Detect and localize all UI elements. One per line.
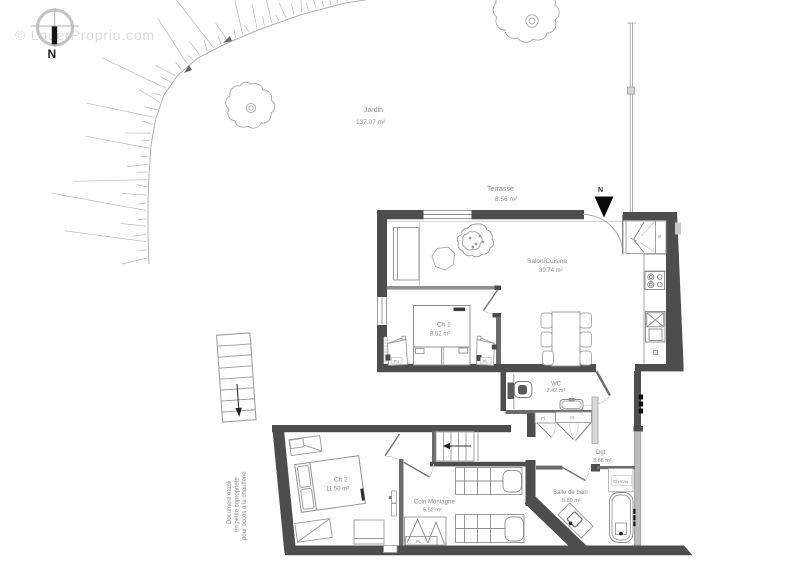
svg-text:Document établi: Document établi [227,481,233,524]
svg-text:Pl.: Pl. [541,416,546,421]
svg-text:N: N [48,47,57,61]
svg-text:PL: PL [416,539,422,544]
svg-text:WC: WC [551,382,562,388]
svg-text:© LouerProprio.com: © LouerProprio.com [15,27,155,43]
svg-text:8.52 m²: 8.52 m² [430,332,450,338]
svg-text:5.80 m²: 5.80 m² [562,498,581,504]
svg-text:Jardin: Jardin [364,107,383,114]
svg-text:8.56 m²: 8.56 m² [495,196,518,203]
svg-text:Ch 1: Ch 1 [437,322,451,329]
svg-text:Terrasse: Terrasse [487,186,514,193]
svg-text:Salon/Cuisine: Salon/Cuisine [527,258,567,265]
svg-text:Pl: Pl [658,235,662,240]
svg-text:2.42 m²: 2.42 m² [547,388,566,394]
svg-text:30.74 m²: 30.74 m² [539,268,563,274]
svg-text:Dgt: Dgt [596,450,606,456]
svg-text:137.07 m²: 137.07 m² [356,119,386,126]
svg-text:Pu: Pu [394,359,400,364]
svg-text:en petite copropriété: en petite copropriété [235,477,241,532]
svg-text:pour accès à la chaufferie: pour accès à la chaufferie [242,471,248,540]
svg-text:5.52 m²: 5.52 m² [423,508,442,514]
svg-text:Pl.: Pl. [570,416,575,421]
svg-text:Salle de bain: Salle de bain [553,490,588,496]
svg-text:Ch-Eau: Ch-Eau [613,479,629,484]
svg-text:Pl.: Pl. [483,359,488,364]
svg-text:N: N [598,187,603,194]
svg-text:Coin Montagne: Coin Montagne [414,500,455,506]
svg-text:Ch 2: Ch 2 [334,477,348,484]
svg-text:3.88 m²: 3.88 m² [593,458,612,464]
svg-text:11.50 m²: 11.50 m² [326,487,349,493]
